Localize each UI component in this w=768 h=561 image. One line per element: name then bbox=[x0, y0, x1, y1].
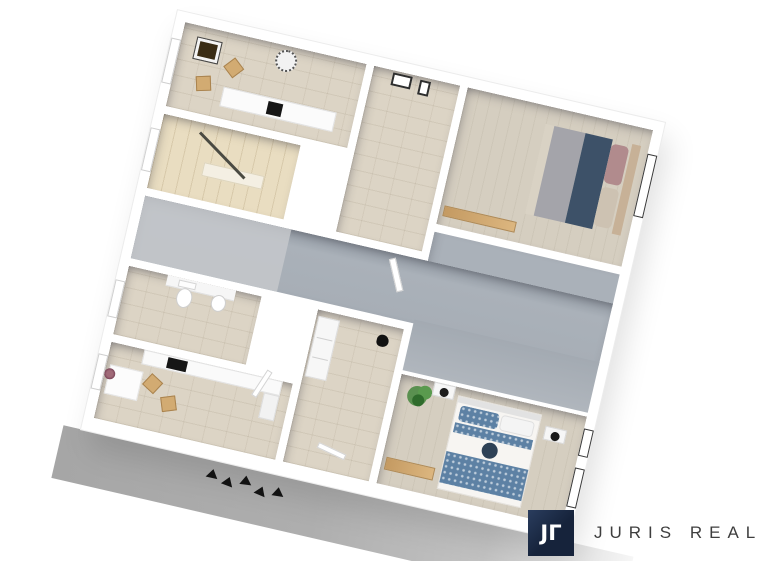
chair bbox=[142, 373, 163, 394]
dark-object bbox=[375, 334, 389, 348]
window bbox=[141, 127, 161, 172]
floorplan bbox=[81, 10, 665, 541]
window bbox=[566, 467, 585, 508]
open-door-leaf bbox=[317, 442, 347, 460]
double-bed bbox=[525, 124, 641, 236]
window bbox=[107, 279, 125, 318]
wooden-bench bbox=[384, 457, 436, 481]
wardrobe-line bbox=[317, 337, 333, 342]
ceiling-medallion-icon bbox=[273, 48, 299, 74]
monogram-right: Γ bbox=[548, 523, 561, 544]
desk bbox=[219, 87, 337, 133]
nightstand bbox=[543, 426, 568, 445]
picture-frame-icon bbox=[193, 38, 221, 64]
desk-appliance bbox=[266, 101, 284, 117]
lamp-icon bbox=[550, 431, 561, 442]
triangle-decor-icon bbox=[206, 468, 220, 479]
chair bbox=[196, 76, 212, 92]
window bbox=[578, 428, 594, 458]
picture-frame-icon bbox=[417, 80, 431, 97]
double-bed bbox=[437, 395, 542, 508]
chair bbox=[160, 395, 177, 412]
brand-monogram-icon: J Γ bbox=[528, 510, 574, 556]
chair bbox=[223, 57, 244, 78]
bed-blanket bbox=[439, 451, 528, 501]
triangle-decor-icon bbox=[271, 486, 284, 497]
floorplan-scene: J Γ JURIS REAL bbox=[0, 0, 768, 561]
brand-name: JURIS REAL bbox=[594, 523, 762, 543]
nightstand bbox=[432, 382, 457, 401]
wooden-bench bbox=[442, 205, 517, 232]
open-door-leaf bbox=[389, 258, 403, 293]
lamp-icon bbox=[439, 387, 450, 398]
tall-cabinet bbox=[258, 392, 279, 421]
round-cushion bbox=[480, 441, 499, 460]
triangle-decor-icon bbox=[254, 484, 269, 497]
triangle-decor-icon bbox=[239, 475, 252, 485]
cooktop-icon bbox=[166, 357, 188, 372]
potted-plant-icon bbox=[405, 382, 436, 411]
window bbox=[161, 38, 181, 85]
wardrobe bbox=[305, 316, 340, 381]
wardrobe-line bbox=[312, 356, 328, 361]
triangle-decor-icon bbox=[221, 475, 235, 488]
picture-frame-icon bbox=[390, 72, 412, 89]
brand-logo: J Γ JURIS REAL bbox=[528, 510, 762, 556]
monogram-left: J bbox=[540, 523, 548, 544]
